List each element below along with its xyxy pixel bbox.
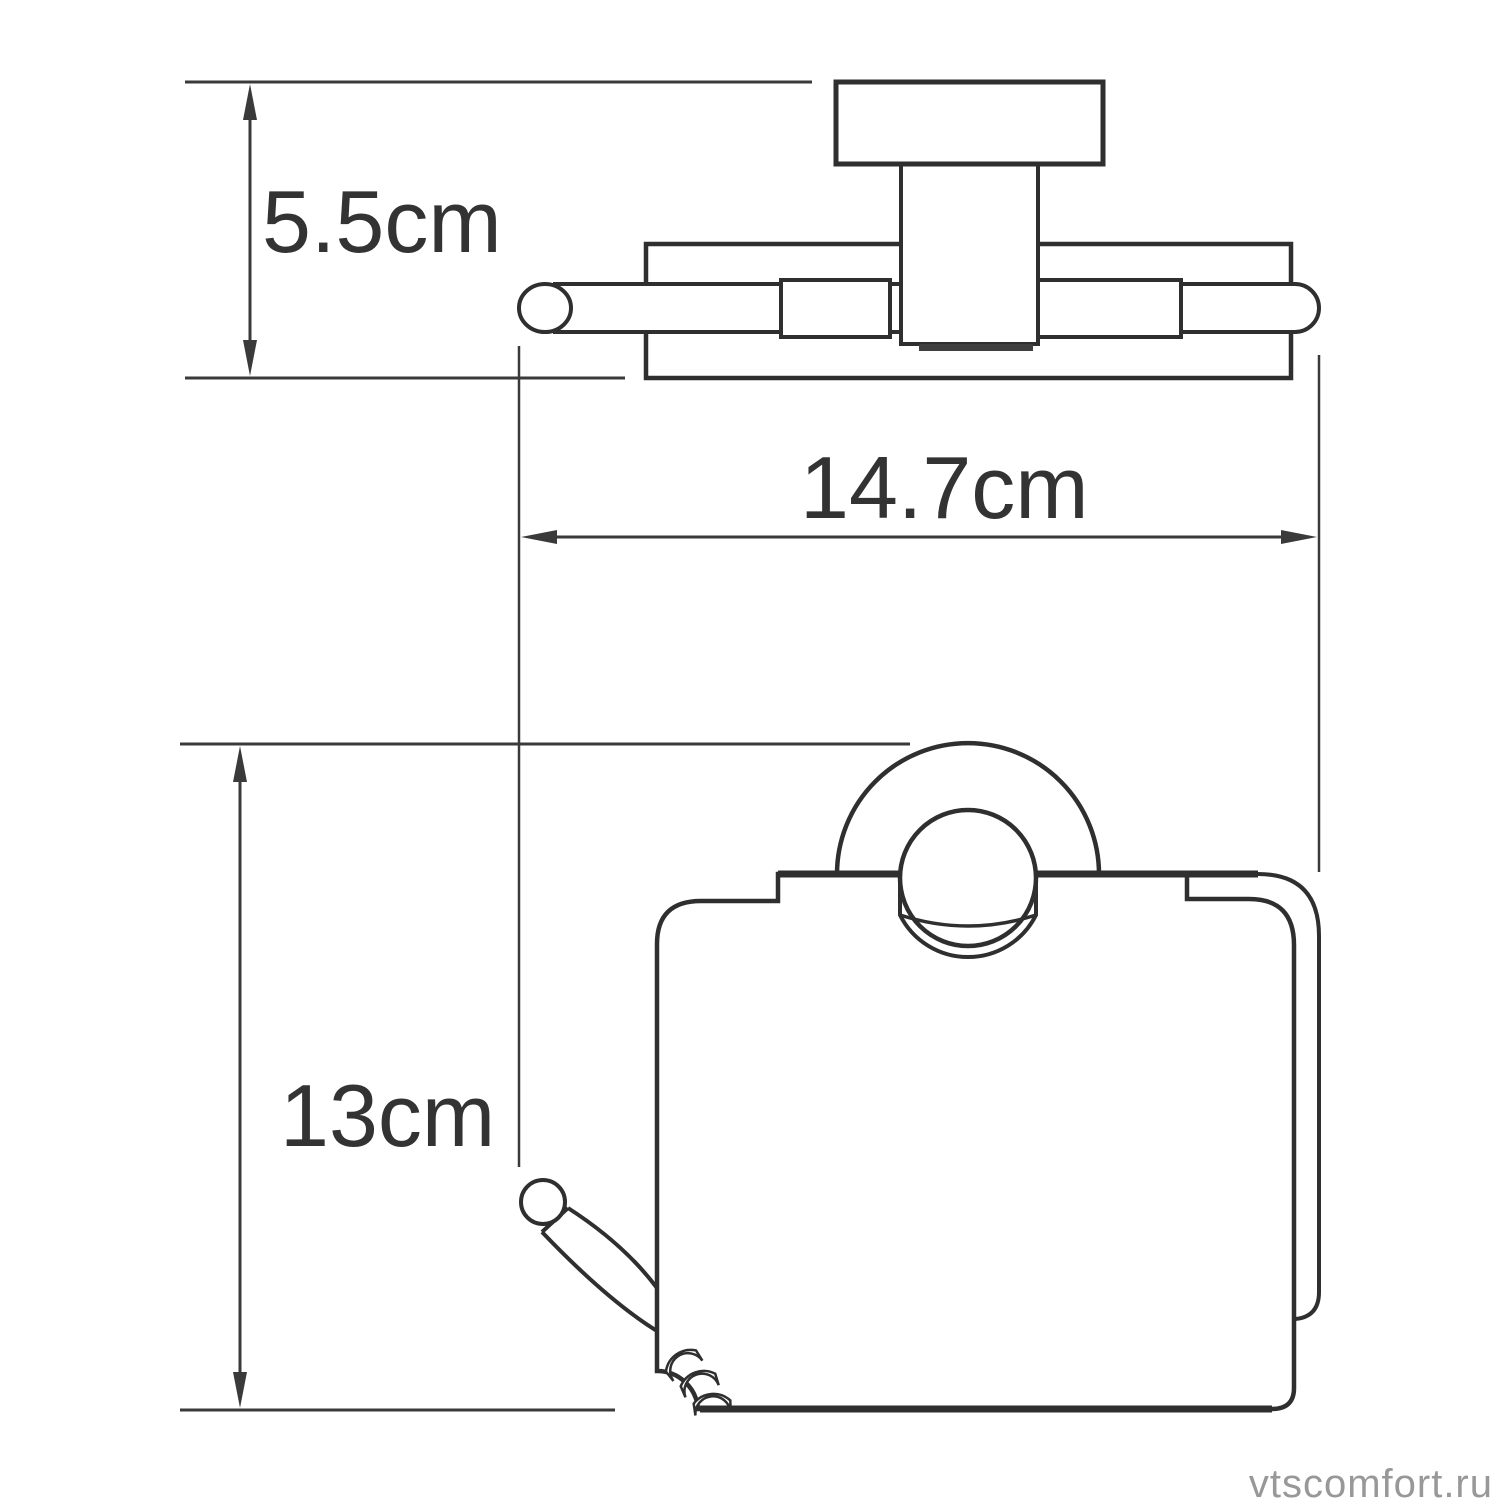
front-view-cover [657, 874, 1294, 1409]
top-view-stem-shadow [919, 344, 1033, 351]
top-view-mount-stem [901, 164, 1038, 344]
arrowhead-up [233, 746, 247, 782]
arrowhead-down [243, 340, 257, 376]
front-view [521, 743, 1319, 1431]
hook-upper-edge [568, 1208, 657, 1288]
arrowhead-right [1281, 530, 1317, 544]
top-view-mount-plate [836, 82, 1103, 164]
arrowhead-down [233, 1372, 247, 1408]
top-view-left-sleeve [781, 280, 890, 337]
dim-label-14-7cm: 14.7cm [800, 438, 1089, 537]
top-view [519, 82, 1319, 378]
top-view-right-sleeve [1038, 280, 1181, 337]
arrowhead-up [243, 84, 257, 120]
dim-label-5-5cm: 5.5cm [262, 172, 502, 271]
dim-label-13cm: 13cm [280, 1066, 495, 1165]
dimension-drawing-canvas: 5.5cm 14.7cm 13cm vtscomfort.ru [0, 0, 1503, 1504]
top-view-roll-bar-left-cap [519, 284, 571, 332]
arrowhead-left [521, 530, 557, 544]
watermark-text: vtscomfort.ru [1249, 1462, 1493, 1504]
front-view-hook-ball [521, 1180, 565, 1224]
front-view-hook-lever [542, 1208, 657, 1331]
technical-drawing-page: 5.5cm 14.7cm 13cm vtscomfort.ru [0, 0, 1503, 1504]
hook-lower-edge [542, 1232, 657, 1331]
